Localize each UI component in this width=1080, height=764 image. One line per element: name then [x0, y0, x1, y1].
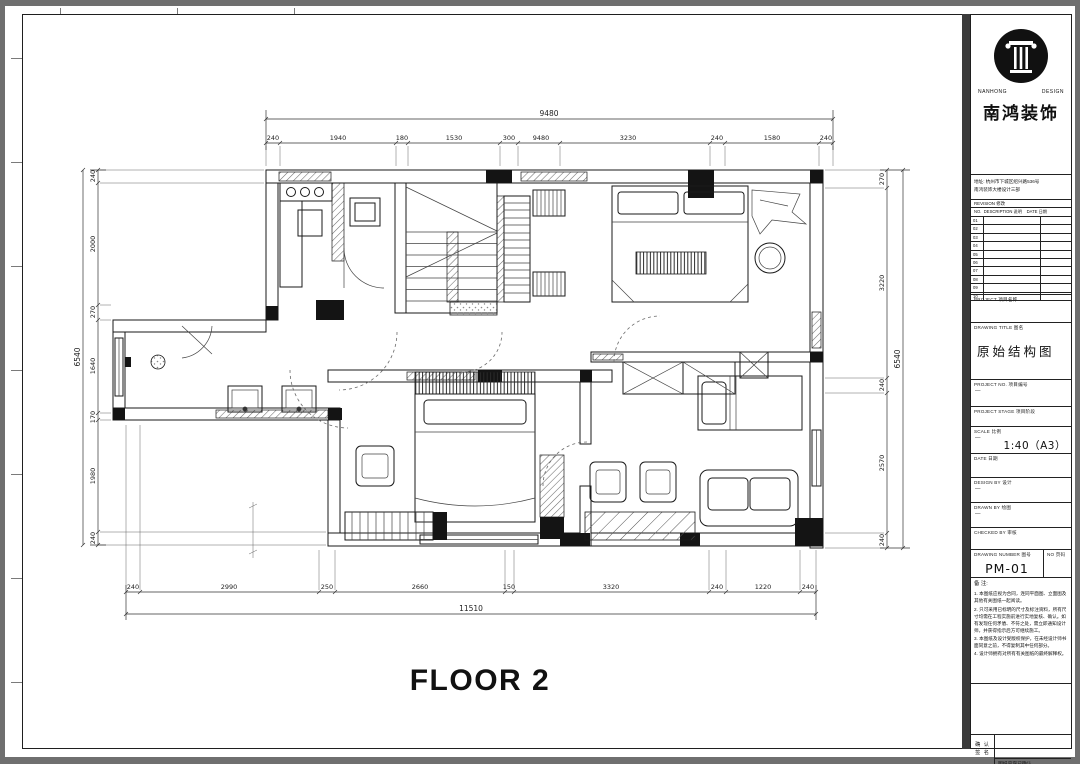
revision-row: 02	[971, 225, 1071, 233]
staircase	[406, 183, 497, 315]
dim-label: 2570	[878, 455, 886, 472]
title-block-divider	[962, 14, 970, 749]
revision-row: 06	[971, 259, 1071, 267]
dim-overall-left: 6540	[73, 347, 82, 366]
revision-table: REVISION 修改 NO. DESCRIPTION 说明 DATE 日期 0…	[971, 200, 1071, 295]
dim-label: 240	[267, 134, 279, 142]
logo-text-en-right: DESIGN	[1042, 89, 1064, 95]
living-room	[585, 352, 802, 540]
revision-row: 07	[971, 267, 1071, 275]
dim-label: 250	[321, 583, 333, 591]
signature-label: 确 认 签 名	[971, 735, 995, 764]
margin-tick	[11, 370, 22, 371]
drawing-sheet-viewport: 240 1940 180 1530 300 9480 3230 240 1580…	[0, 0, 1080, 764]
margin-tick	[11, 474, 22, 475]
master-bed	[612, 186, 748, 302]
dim-overall-bottom: 11510	[459, 604, 483, 613]
drawn-by-cell: DRAWN BY 绘图 —	[971, 503, 1071, 528]
dim-label: 2660	[412, 583, 429, 591]
revision-row: 01	[971, 217, 1071, 225]
dim-label: 270	[878, 173, 886, 185]
margin-tick	[11, 578, 22, 579]
signature-space	[995, 735, 1071, 759]
drawing-title: 原始结构图	[971, 341, 1071, 360]
drawing-paper: 240 1940 180 1530 300 9480 3230 240 1580…	[5, 6, 1075, 757]
revision-row: 09	[971, 284, 1071, 292]
dim-label: 240	[878, 379, 886, 391]
dim-label: 240	[820, 134, 832, 142]
notes-cell: 备 注: 1. 本图纸应视为合同，连同平面图、立面图及其他有关图纸一起阅读。 2…	[971, 578, 1071, 684]
dim-label: 3320	[603, 583, 620, 591]
dimension-chain-right: 270 3220 240 2570 240 6540	[825, 168, 910, 550]
dim-label: 240	[711, 134, 723, 142]
scale-cell: SCALE 比例 — 1:40（A3）	[971, 427, 1071, 454]
company-address: 地址: 杭州市下城区绍兴路536号 南鸿装饰大楼设计三部	[971, 175, 1071, 200]
dim-label: 170	[89, 411, 97, 423]
dim-label: 1580	[764, 134, 781, 142]
revision-row: 04	[971, 242, 1071, 250]
margin-tick	[11, 162, 22, 163]
notes-title: 备 注:	[974, 580, 1068, 588]
dim-label: 2990	[221, 583, 238, 591]
revision-row: 08	[971, 276, 1071, 284]
confirm-note: 图纸内容已确认	[995, 759, 1071, 764]
dim-label: 180	[396, 134, 408, 142]
dim-label: 240	[89, 170, 97, 182]
dim-label: 240	[89, 532, 97, 544]
clothes-pile	[752, 190, 806, 234]
drawing-title-cell: DRAWING TITLE 图名 原始结构图	[971, 323, 1071, 380]
design-by-cell: DESIGN BY 设计 —	[971, 478, 1071, 503]
round-rug	[755, 243, 785, 273]
project-stage-cell: PROJECT STAGE 项目阶段	[971, 407, 1071, 427]
drawing-number: PM-01	[971, 561, 1043, 576]
logo-text-en-left: NANHONG	[978, 89, 1007, 95]
dimension-chain-top: 240 1940 180 1530 300 9480 3230 240 1580…	[264, 109, 835, 166]
title-block: NANHONG DESIGN 南鸿装饰 地址: 杭州市下城区绍兴路536号 南鸿…	[970, 14, 1072, 749]
confirmation-cell: 确 认 签 名 图纸内容已确认	[971, 735, 1071, 764]
company-logo-cell: NANHONG DESIGN 南鸿装饰	[971, 29, 1071, 175]
margin-tick	[11, 682, 22, 683]
windows	[115, 338, 821, 544]
dim-label: 1980	[89, 468, 97, 485]
revision-columns: NO. DESCRIPTION 说明 DATE 日期	[971, 208, 1071, 217]
dim-label: 3220	[878, 275, 886, 292]
dim-label: 1940	[330, 134, 347, 142]
scale-value: 1:40（A3）	[1004, 438, 1066, 453]
dim-overall-top: 9480	[539, 109, 558, 118]
margin-tick	[11, 266, 22, 267]
column-logo-icon	[994, 29, 1048, 83]
dim-label: 150	[503, 583, 515, 591]
margin-tick	[11, 58, 22, 59]
checked-by-cell: CHECKED BY 审核	[971, 528, 1071, 550]
floor-title: FLOOR 2	[280, 664, 680, 698]
project-no-cell: PROJECT NO. 项目编号 —	[971, 380, 1071, 407]
dim-label: 270	[89, 306, 97, 318]
dim-label: 240	[711, 583, 723, 591]
door-swing-arcs	[290, 316, 660, 486]
dim-label: 1640	[89, 358, 97, 375]
dim-label: 1220	[755, 583, 772, 591]
bathroom	[125, 326, 316, 412]
minor-dimension	[249, 502, 257, 558]
company-name: 南鸿装饰	[971, 99, 1071, 124]
revision-header: REVISION 修改	[971, 200, 1071, 208]
floor-plan-drawing: 240 1940 180 1530 300 9480 3230 240 1580…	[22, 14, 962, 750]
dresser	[636, 252, 706, 274]
dim-label: 2000	[89, 236, 97, 253]
project-cell: PROJECT 项目名称	[971, 295, 1071, 323]
dim-label: 3230	[620, 134, 637, 142]
dim-overall-right: 6540	[893, 349, 902, 368]
date-cell: DATE 日期	[971, 454, 1071, 478]
spare-cell	[971, 684, 1071, 735]
drawing-number-cell: DRAWING NUMBER 图号 PM-01 NO 页码	[971, 550, 1071, 578]
dim-label: 1530	[446, 134, 463, 142]
wardrobe-rails	[533, 190, 565, 296]
bedroom-two	[345, 372, 564, 540]
dimension-chain-left: 240 2000 270 1640 170 1980 240 6540	[73, 168, 326, 547]
dim-label: 240	[878, 534, 886, 546]
shelf-unit	[497, 196, 530, 302]
dim-label: 240	[802, 583, 814, 591]
revision-row: 05	[971, 251, 1071, 259]
revision-row: 03	[971, 234, 1071, 242]
dim-label: 240	[127, 583, 139, 591]
walls	[113, 170, 823, 548]
dim-label: 300	[503, 134, 515, 142]
dim-label: 9480	[533, 134, 550, 142]
